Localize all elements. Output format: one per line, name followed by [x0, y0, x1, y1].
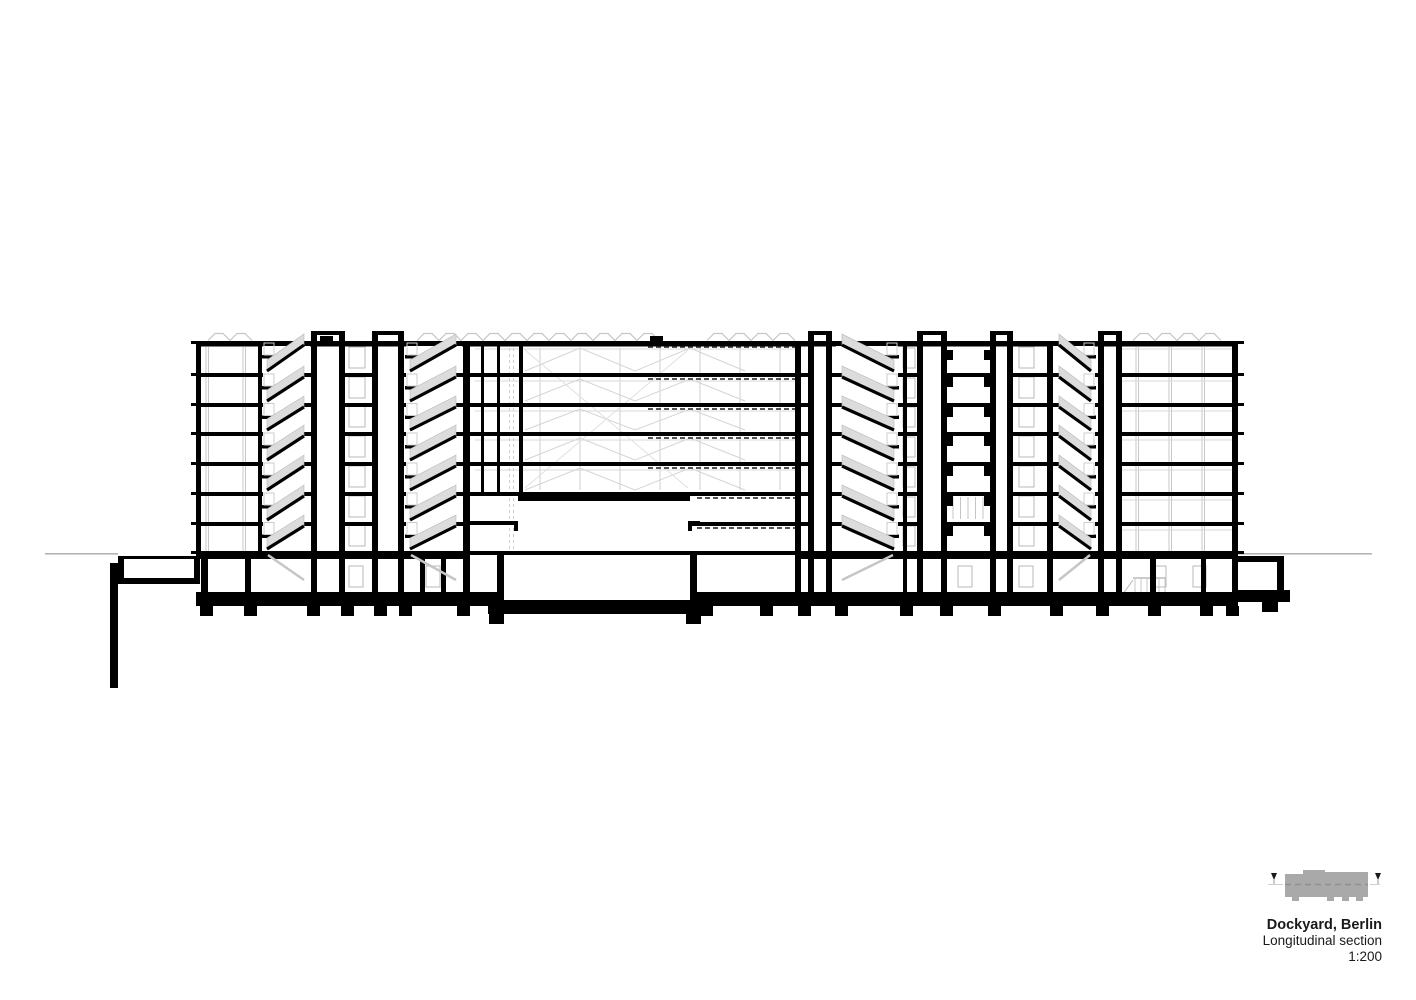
project-title: Dockyard, Berlin — [1162, 917, 1382, 933]
key-plan — [1266, 867, 1382, 905]
drawing-sheet: Dockyard, Berlin Longitudinal section 1:… — [0, 0, 1416, 1000]
drawing-scale: 1:200 — [1162, 949, 1382, 965]
drawing-title: Longitudinal section — [1162, 933, 1382, 949]
site-retaining-wall — [110, 556, 200, 688]
key-plan-icon — [1266, 867, 1382, 905]
title-block: Dockyard, Berlin Longitudinal section 1:… — [1162, 867, 1382, 964]
key-plan-footprint — [1285, 870, 1368, 897]
building-section-drawing — [0, 0, 1416, 1000]
